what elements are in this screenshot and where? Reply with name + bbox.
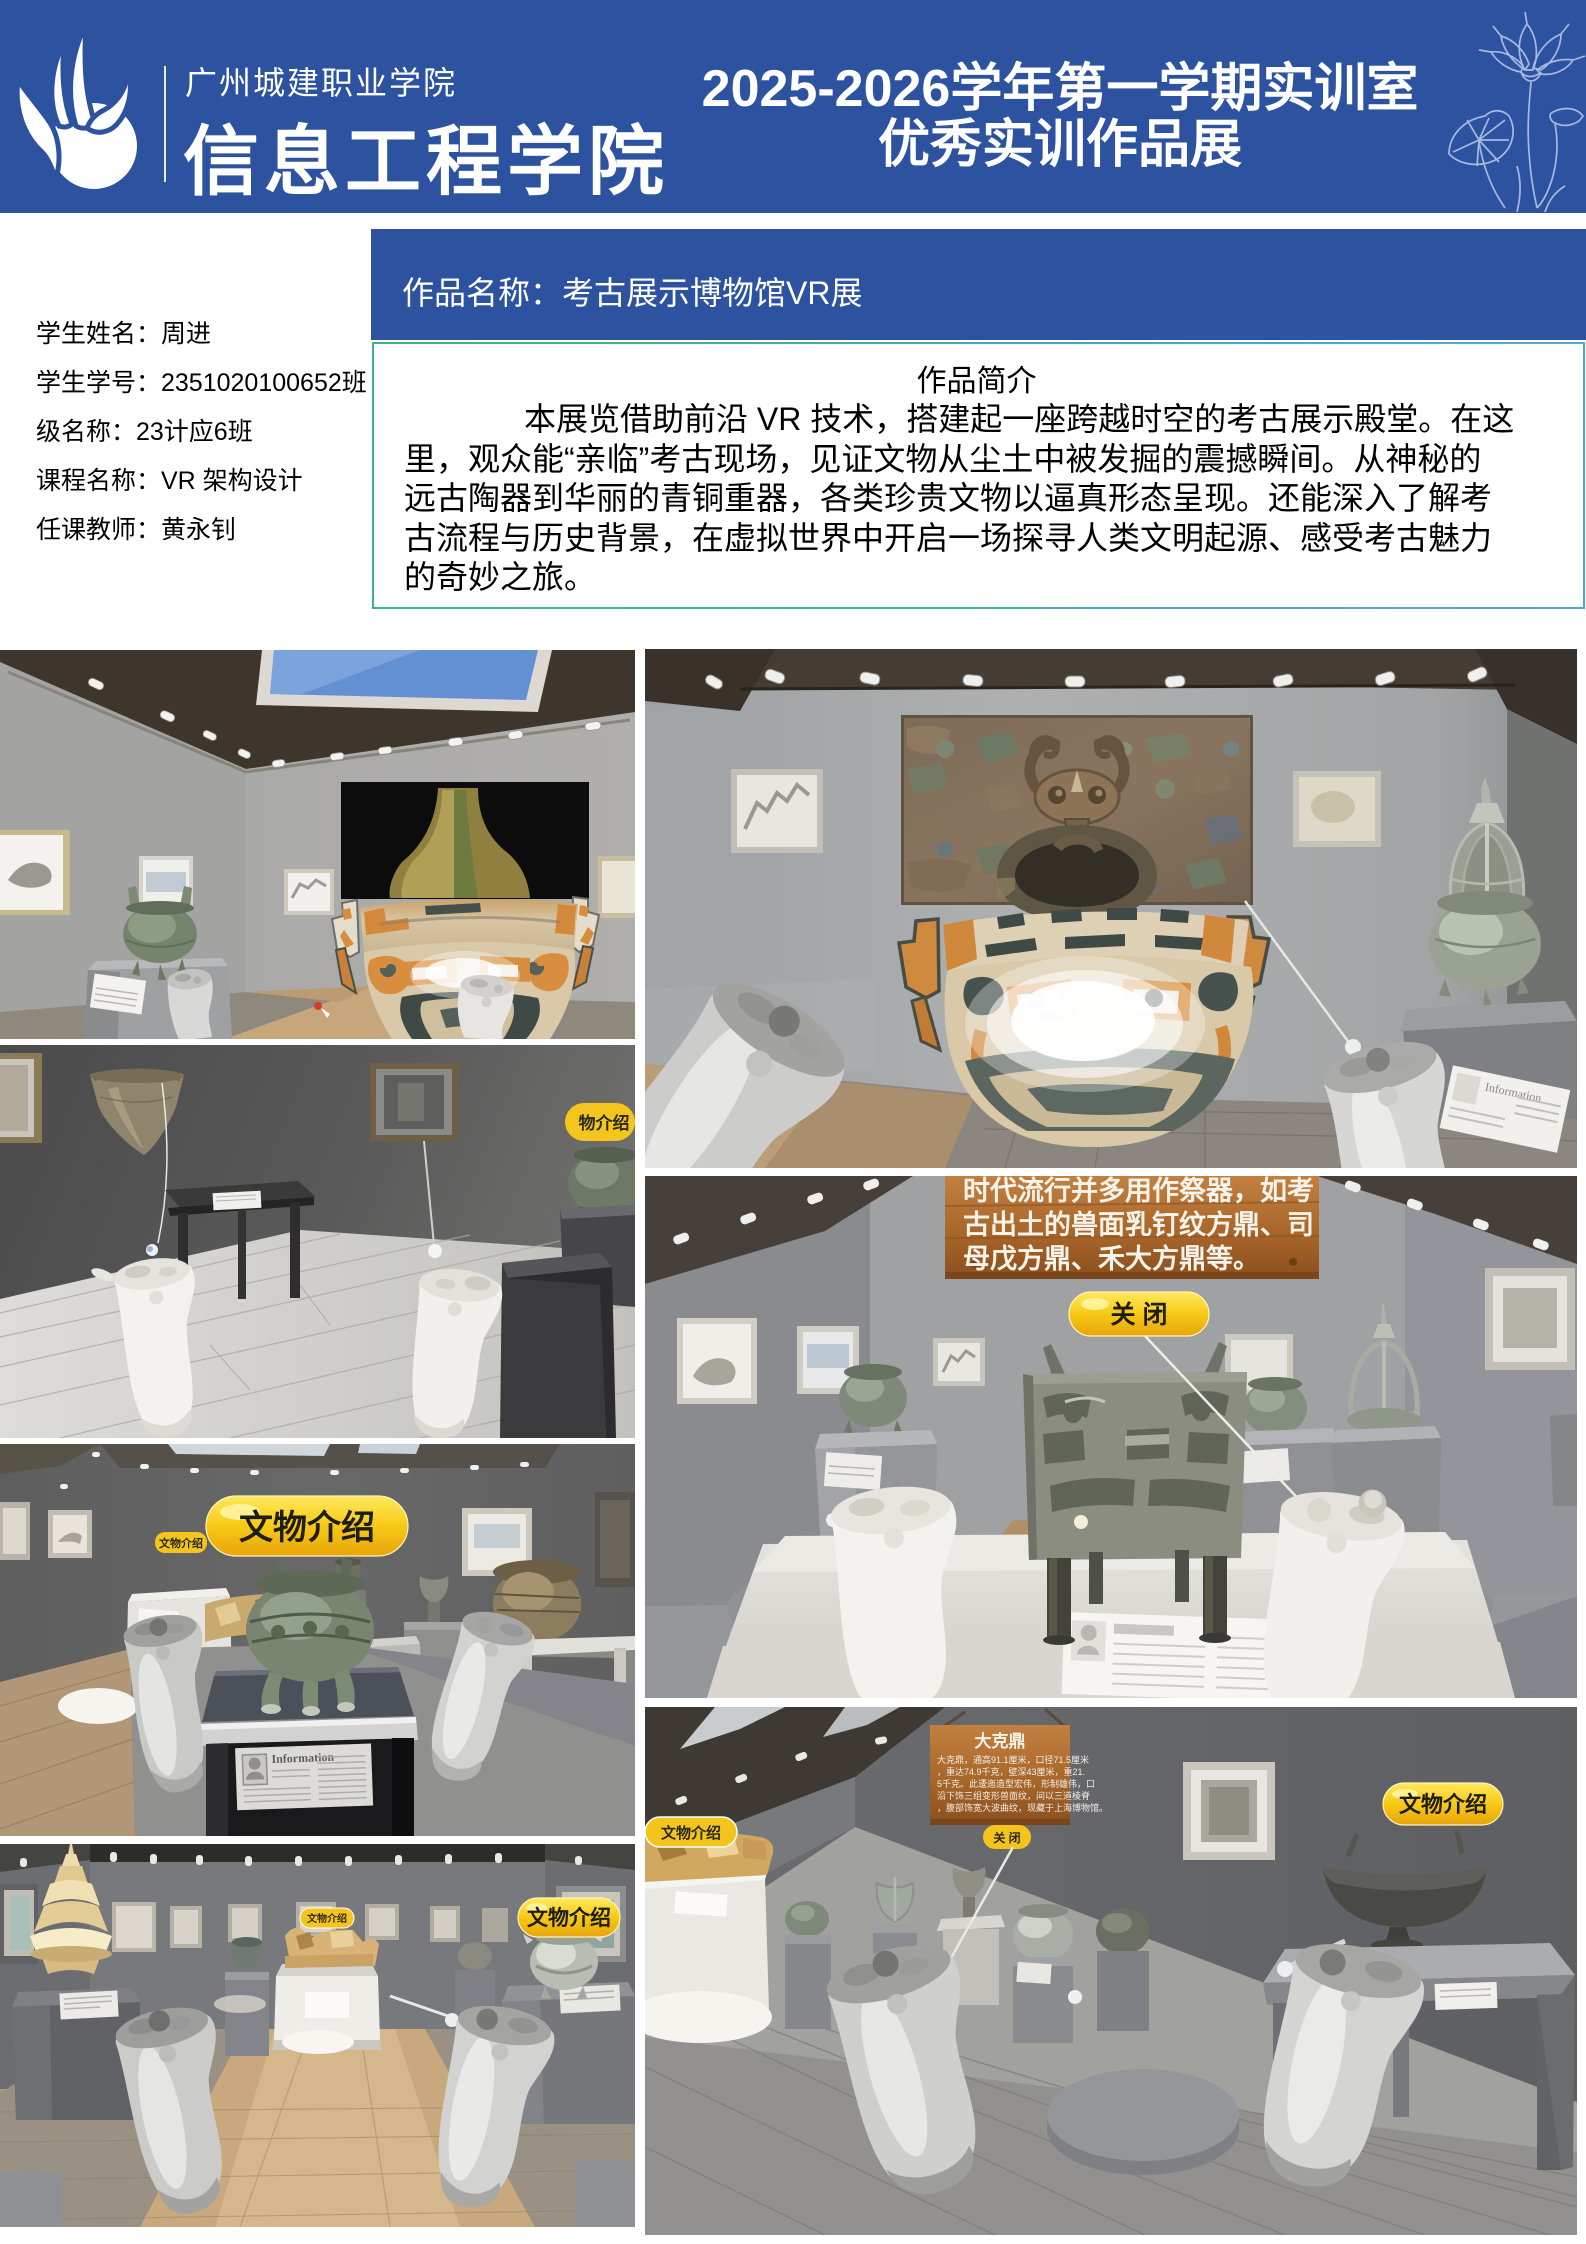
svg-text:文物介绍: 文物介绍 [661,1824,721,1842]
svg-text:大克鼎，通高91.1厘米，口径71.5厘米: 大克鼎，通高91.1厘米，口径71.5厘米 [937,1754,1089,1765]
svg-text:关 闭: 关 闭 [993,1830,1020,1845]
svg-text:文物介绍: 文物介绍 [307,1912,347,1925]
svg-text:文物介绍: 文物介绍 [159,1536,203,1550]
svg-text:文物介绍: 文物介绍 [527,1906,611,1930]
svg-text:，腹部饰宽大波曲纹，现藏于上海博物馆。: ，腹部饰宽大波曲纹，现藏于上海博物馆。 [937,1802,1108,1813]
svg-text:，重达74.9千克，壁深43厘米，重21.: ，重达74.9千克，壁深43厘米，重21. [937,1766,1085,1777]
svg-text:古出土的兽面乳钉纹方鼎、司: 古出土的兽面乳钉纹方鼎、司 [963,1209,1314,1240]
svg-text:文物介绍: 文物介绍 [1399,1792,1487,1817]
svg-text:大克鼎: 大克鼎 [975,1731,1026,1751]
svg-text:沿下饰三组变形兽面纹，间以三道棱脊: 沿下饰三组变形兽面纹，间以三道棱脊 [937,1790,1090,1801]
svg-text:时代流行并多用作祭器，如考: 时代流行并多用作祭器，如考 [963,1176,1314,1206]
svg-text:文物介绍: 文物介绍 [239,1509,375,1547]
svg-text:物介绍: 物介绍 [579,1113,630,1133]
svg-text:母戊方鼎、禾大方鼎等。: 母戊方鼎、禾大方鼎等。 [963,1243,1260,1274]
svg-text:关 闭: 关 闭 [1111,1301,1168,1329]
svg-text:5千克。此逶迤造型宏伟，形制雄伟，口: 5千克。此逶迤造型宏伟，形制雄伟，口 [937,1778,1095,1789]
